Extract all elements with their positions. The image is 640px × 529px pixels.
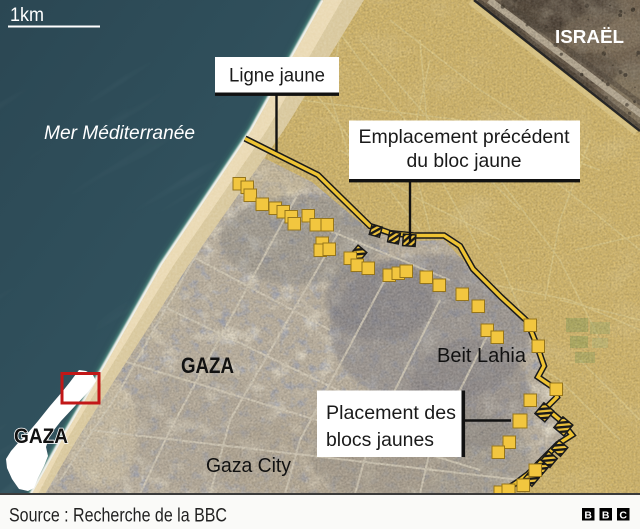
svg-text:Mer Méditerranée: Mer Méditerranée [44, 123, 195, 144]
svg-text:ISRAËL: ISRAËL [555, 27, 624, 47]
svg-text:GAZA: GAZA [181, 353, 234, 378]
svg-text:du bloc jaune: du bloc jaune [407, 150, 522, 172]
svg-text:B: B [584, 509, 592, 521]
svg-text:Emplacement précédent: Emplacement précédent [359, 126, 571, 148]
svg-text:GAZA: GAZA [14, 425, 68, 448]
svg-text:Ligne jaune: Ligne jaune [229, 65, 325, 87]
svg-text:Source : Recherche de la BBC: Source : Recherche de la BBC [9, 505, 227, 527]
svg-text:Beit Lahia: Beit Lahia [437, 345, 527, 367]
svg-text:Placement des: Placement des [326, 402, 456, 424]
svg-text:C: C [619, 509, 627, 521]
svg-text:Gaza City: Gaza City [206, 455, 291, 477]
svg-text:blocs jaunes: blocs jaunes [326, 429, 434, 451]
svg-text:B: B [602, 509, 610, 521]
svg-text:1km: 1km [10, 5, 44, 26]
